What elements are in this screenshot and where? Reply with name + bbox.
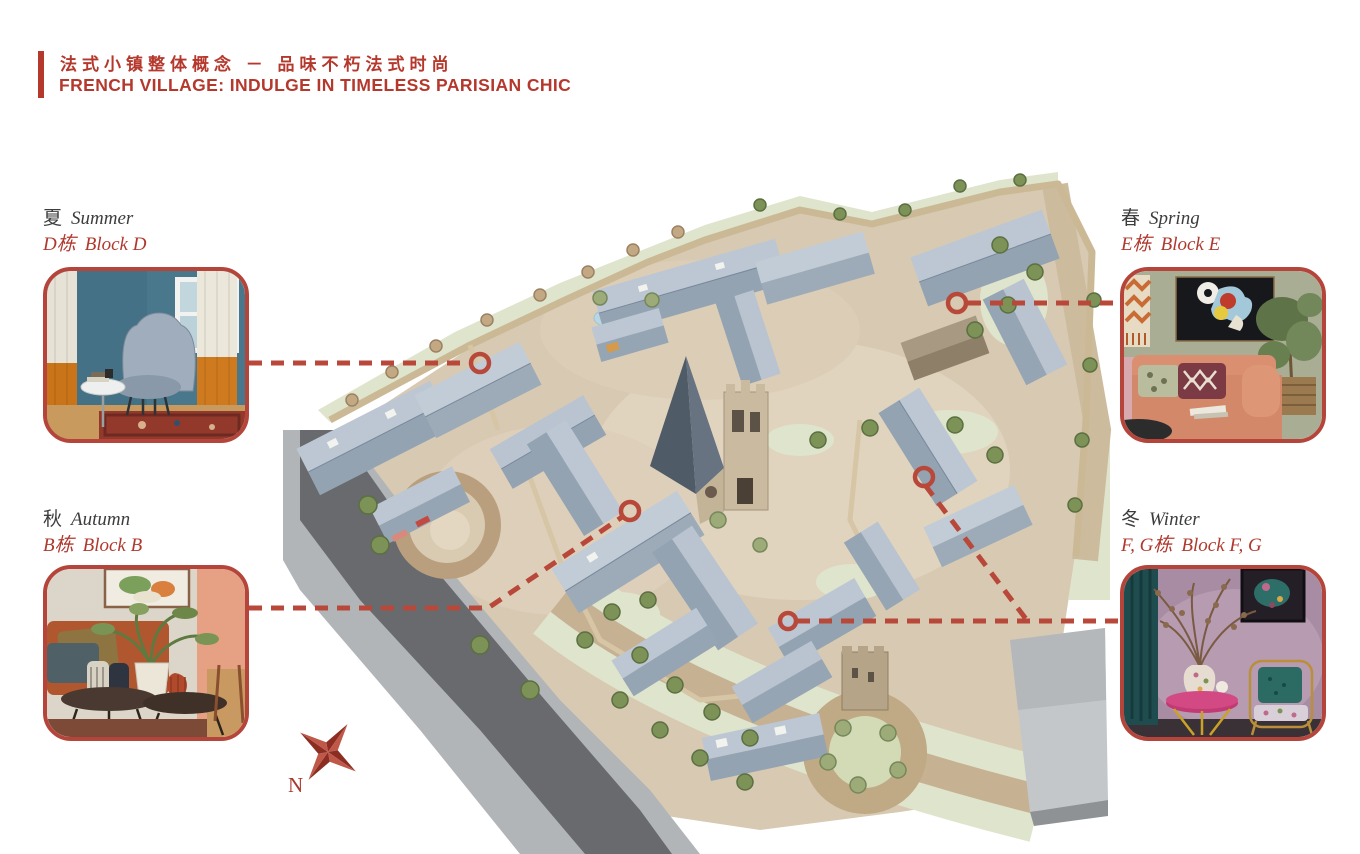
summer-photo-card [43, 267, 249, 443]
autumn-room-photo [47, 569, 245, 737]
winter-room-photo [1124, 569, 1322, 737]
winter-photo-card [1120, 565, 1326, 741]
rug [99, 411, 245, 439]
framed-artwork [105, 569, 189, 607]
pillows [1138, 363, 1226, 399]
teal-curtain [1124, 569, 1158, 725]
spring-photo-card [1120, 267, 1326, 443]
autumn-photo-card [43, 565, 249, 741]
slide-page: { "header": { "title_zh": "法式小镇整体概念 － 品味… [0, 0, 1360, 854]
spring-room-photo [1124, 271, 1322, 439]
compass-north-label: N [288, 773, 303, 797]
summer-room-photo [47, 271, 245, 439]
rug [47, 719, 207, 737]
compass-rose-icon: N [281, 705, 376, 800]
stone-tower [842, 646, 888, 710]
macrame-hanging [1124, 275, 1150, 347]
